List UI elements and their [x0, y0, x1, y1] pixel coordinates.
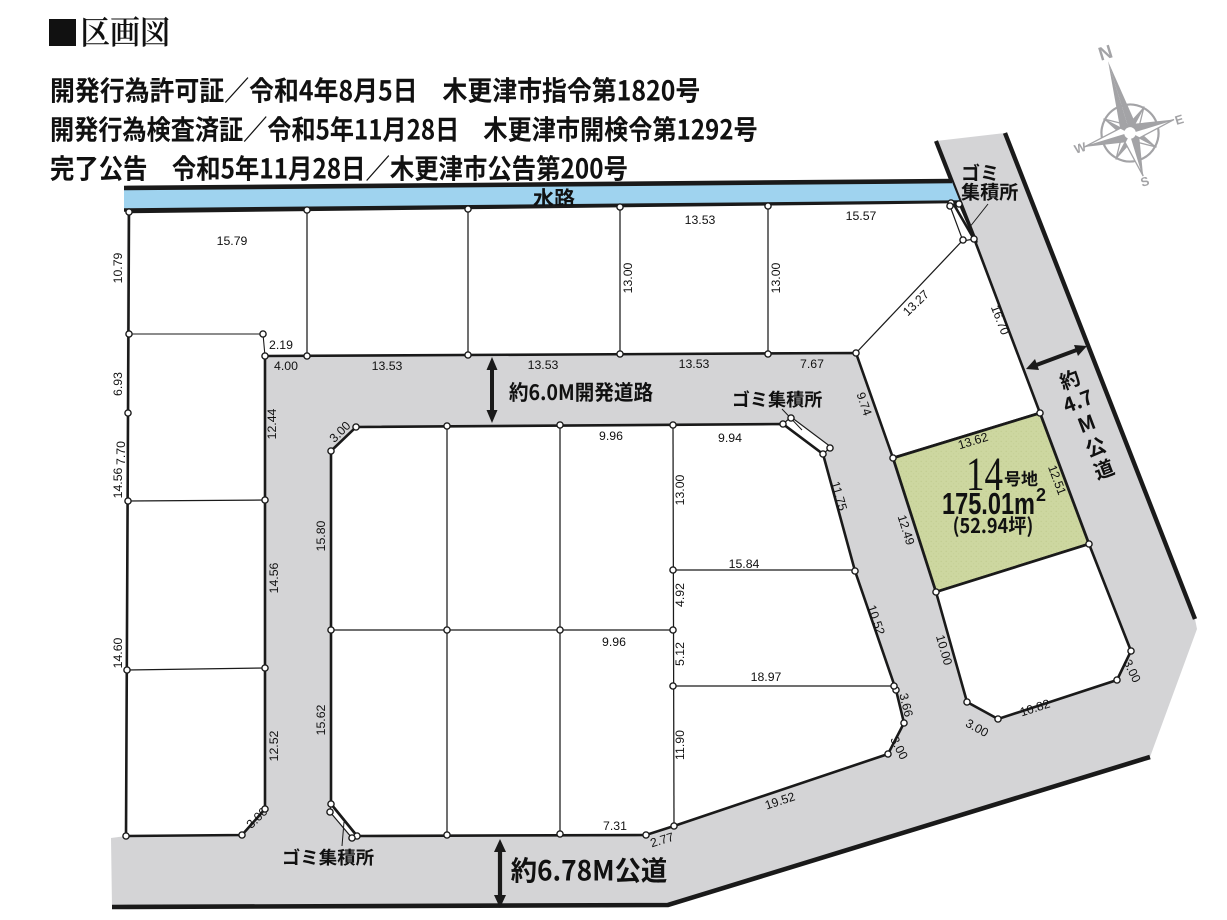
svg-text:4.92: 4.92: [673, 583, 687, 607]
svg-text:15.79: 15.79: [217, 234, 248, 248]
svg-text:2: 2: [1036, 485, 1046, 505]
svg-text:9.96: 9.96: [602, 635, 626, 649]
svg-text:2.19: 2.19: [269, 338, 293, 352]
svg-text:13.53: 13.53: [372, 359, 403, 373]
svg-text:15.84: 15.84: [729, 557, 760, 571]
svg-text:15.57: 15.57: [846, 209, 877, 223]
svg-text:13.00: 13.00: [673, 474, 687, 505]
svg-text:13.53: 13.53: [679, 357, 710, 371]
svg-text:14.60: 14.60: [111, 637, 125, 668]
svg-text:12.44: 12.44: [265, 408, 279, 439]
svg-text:4.00: 4.00: [274, 359, 298, 373]
svg-text:9.96: 9.96: [599, 429, 623, 443]
svg-text:13.00: 13.00: [769, 262, 783, 293]
svg-text:18.97: 18.97: [751, 670, 782, 684]
svg-text:6.93: 6.93: [111, 372, 125, 396]
svg-text:13.53: 13.53: [685, 213, 716, 227]
svg-text:14.56: 14.56: [267, 562, 281, 593]
svg-text:11.90: 11.90: [673, 730, 687, 760]
svg-text:175.01m: 175.01m: [942, 486, 1035, 521]
svg-text:7.67: 7.67: [800, 357, 824, 371]
svg-text:13.00: 13.00: [621, 262, 635, 293]
svg-text:7.70: 7.70: [114, 441, 128, 465]
svg-text:13.53: 13.53: [528, 358, 559, 372]
svg-text:15.80: 15.80: [314, 520, 328, 551]
svg-text:10.79: 10.79: [111, 252, 125, 283]
svg-text:15.62: 15.62: [314, 704, 328, 735]
svg-text:14.56: 14.56: [111, 467, 125, 498]
svg-text:12.52: 12.52: [267, 730, 281, 761]
svg-text:7.31: 7.31: [603, 819, 627, 833]
svg-text:5.12: 5.12: [673, 642, 687, 666]
svg-text:9.94: 9.94: [718, 431, 742, 445]
